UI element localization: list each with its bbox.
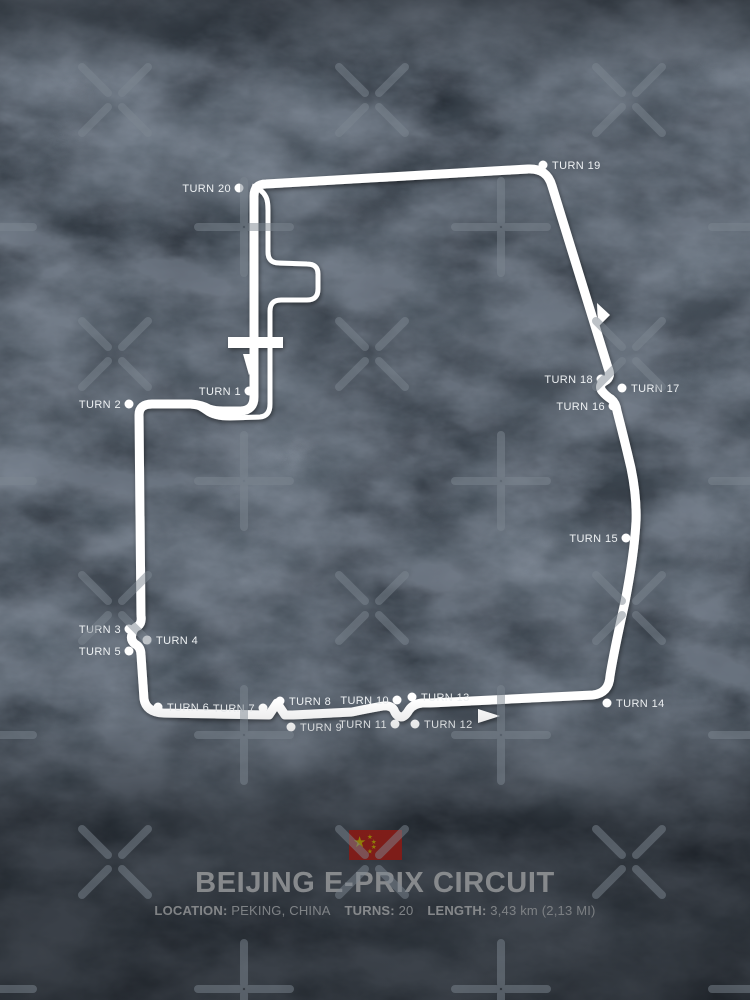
- poster-canvas: { "poster": { "title": "BEIJING E-PRIX C…: [0, 0, 750, 1000]
- watermark-glyph: [0, 181, 33, 273]
- watermark-glyph: [596, 575, 662, 641]
- watermark-glyph: [198, 943, 290, 1000]
- watermark-glyph: [455, 181, 547, 273]
- watermark-glyph: [339, 321, 405, 387]
- watermark-glyph: [712, 435, 750, 527]
- watermark-glyph: [455, 943, 547, 1000]
- watermark-glyph: [596, 321, 662, 387]
- watermark-glyph: [339, 575, 405, 641]
- watermark-glyph: [198, 435, 290, 527]
- watermark-glyph: [82, 67, 148, 133]
- watermark-glyph: [0, 435, 33, 527]
- watermark-glyph: [82, 829, 148, 895]
- watermark-glyph: [712, 181, 750, 273]
- watermark-glyph: [712, 943, 750, 1000]
- watermark-glyph: [712, 689, 750, 781]
- watermark-glyph: [596, 67, 662, 133]
- watermark-glyph: [0, 689, 33, 781]
- watermark-glyph: [198, 181, 290, 273]
- watermark-layer: [0, 0, 750, 1000]
- watermark-glyph: [339, 67, 405, 133]
- watermark-glyph: [455, 689, 547, 781]
- watermark-glyph: [0, 943, 33, 1000]
- watermark-glyph: [198, 689, 290, 781]
- watermark-glyph: [455, 435, 547, 527]
- watermark-glyph: [82, 575, 148, 641]
- watermark-glyph: [339, 829, 405, 895]
- watermark-glyph: [82, 321, 148, 387]
- watermark-glyph: [596, 829, 662, 895]
